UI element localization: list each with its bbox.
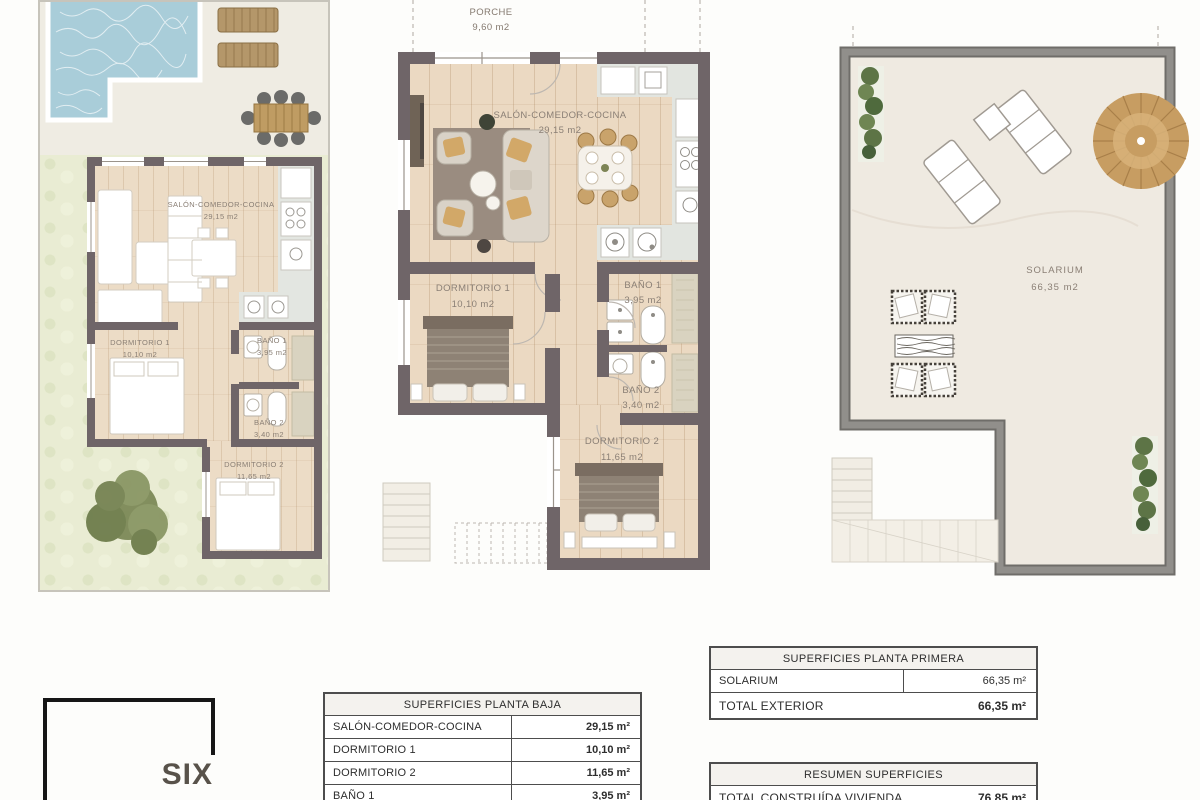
plan-ground-drawing <box>40 2 328 590</box>
table-row: DORMITORIO 2 11,65 m² <box>325 762 640 785</box>
room-label-salon: SALÓN-COMEDOR-COCINA 29,15 m2 <box>168 201 275 220</box>
room-label-dormitorio1: DORMITORIO 1 10,10 m2 <box>436 284 510 309</box>
rug <box>895 335 955 357</box>
floor-pouf <box>477 239 491 253</box>
exterior-stairs <box>383 483 430 561</box>
bed-dormitorio1 <box>411 316 525 401</box>
stairs-dashed <box>455 523 547 563</box>
porch-label: PORCHE 9,60 m2 <box>469 8 512 32</box>
room-label-bano2: BAÑO 2 3,40 m2 <box>254 419 284 438</box>
exterior-stairs <box>832 458 998 562</box>
porch-dashed-lines <box>413 0 700 52</box>
table-header: RESUMEN SUPERFICIES <box>711 764 1036 786</box>
tree-icon <box>86 470 168 555</box>
room-label-solarium: SOLARIUM 66,35 m2 <box>1026 266 1084 292</box>
table-row: TOTAL CONSTRUÍDA VIVIENDA 76,85 m² <box>711 786 1036 800</box>
logo-text-six: SIX <box>103 758 213 792</box>
table-header: SUPERFICIES PLANTA PRIMERA <box>711 648 1036 670</box>
surface-table-planta-baja: SUPERFICIES PLANTA BAJA SALÓN-COMEDOR-CO… <box>323 692 642 800</box>
dining-set <box>578 129 638 207</box>
shower-tiles <box>672 266 698 343</box>
floor-plan-sheet: SALÓN-COMEDOR-COCINA 29,15 m2 DORMITORIO… <box>0 0 1200 800</box>
outdoor-dining-table <box>241 90 321 147</box>
plan-ground-with-garden: SALÓN-COMEDOR-COCINA 29,15 m2 DORMITORIO… <box>38 0 330 592</box>
bed-dormitorio2 <box>564 463 675 548</box>
plan-ground-detail-drawing <box>380 0 720 600</box>
plan-first-drawing <box>820 0 1200 600</box>
room-label-bano2: BAÑO 2 3,40 m2 <box>622 386 659 410</box>
room-label-bano1: BAÑO 1 3,95 m2 <box>257 337 287 356</box>
surface-table-resumen: RESUMEN SUPERFICIES TOTAL CONSTRUÍDA VIV… <box>709 762 1038 800</box>
armchair <box>437 200 473 236</box>
room-label-bano1: BAÑO 1 3,95 m2 <box>624 281 661 305</box>
logo-text-second-line: SEGURA <box>58 795 213 800</box>
plan-first-floor-solarium: SOLARIUM 66,35 m2 <box>820 0 1200 600</box>
plant-strip <box>858 66 884 162</box>
sofa <box>503 130 549 242</box>
table-row: TOTAL EXTERIOR 66,35 m² <box>711 693 1036 718</box>
tv-icon <box>420 103 424 159</box>
table-row: BAÑO 1 3,95 m² <box>325 785 640 800</box>
surface-table-planta-primera: SUPERFICIES PLANTA PRIMERA SOLARIUM 66,3… <box>709 646 1038 720</box>
room-label-dormitorio2: DORMITORIO 2 11,65 m2 <box>585 437 659 462</box>
bath-fixtures <box>607 300 665 388</box>
coffee-table <box>470 171 496 197</box>
parasol-icon <box>1093 93 1189 189</box>
table-row: SALÓN-COMEDOR-COCINA 29,15 m² <box>325 716 640 739</box>
armchair <box>437 132 471 164</box>
room-label-salon: SALÓN-COMEDOR-COCINA 29,15 m2 <box>493 111 626 135</box>
room-label-dormitorio2: DORMITORIO 2 11,65 m2 <box>224 461 284 480</box>
plan-ground-detail: PORCHE 9,60 m2 SALÓN-COMEDOR-COCINA 29,1… <box>380 0 720 600</box>
table-row: SOLARIUM 66,35 m² <box>711 670 1036 693</box>
table-row: DORMITORIO 1 10,10 m² <box>325 739 640 762</box>
shower-tiles <box>292 336 314 380</box>
plant-strip <box>1132 436 1158 534</box>
sun-lounger <box>218 8 278 67</box>
table-header: SUPERFICIES PLANTA BAJA <box>325 694 640 716</box>
room-label-dormitorio1: DORMITORIO 1 10,10 m2 <box>110 339 170 358</box>
